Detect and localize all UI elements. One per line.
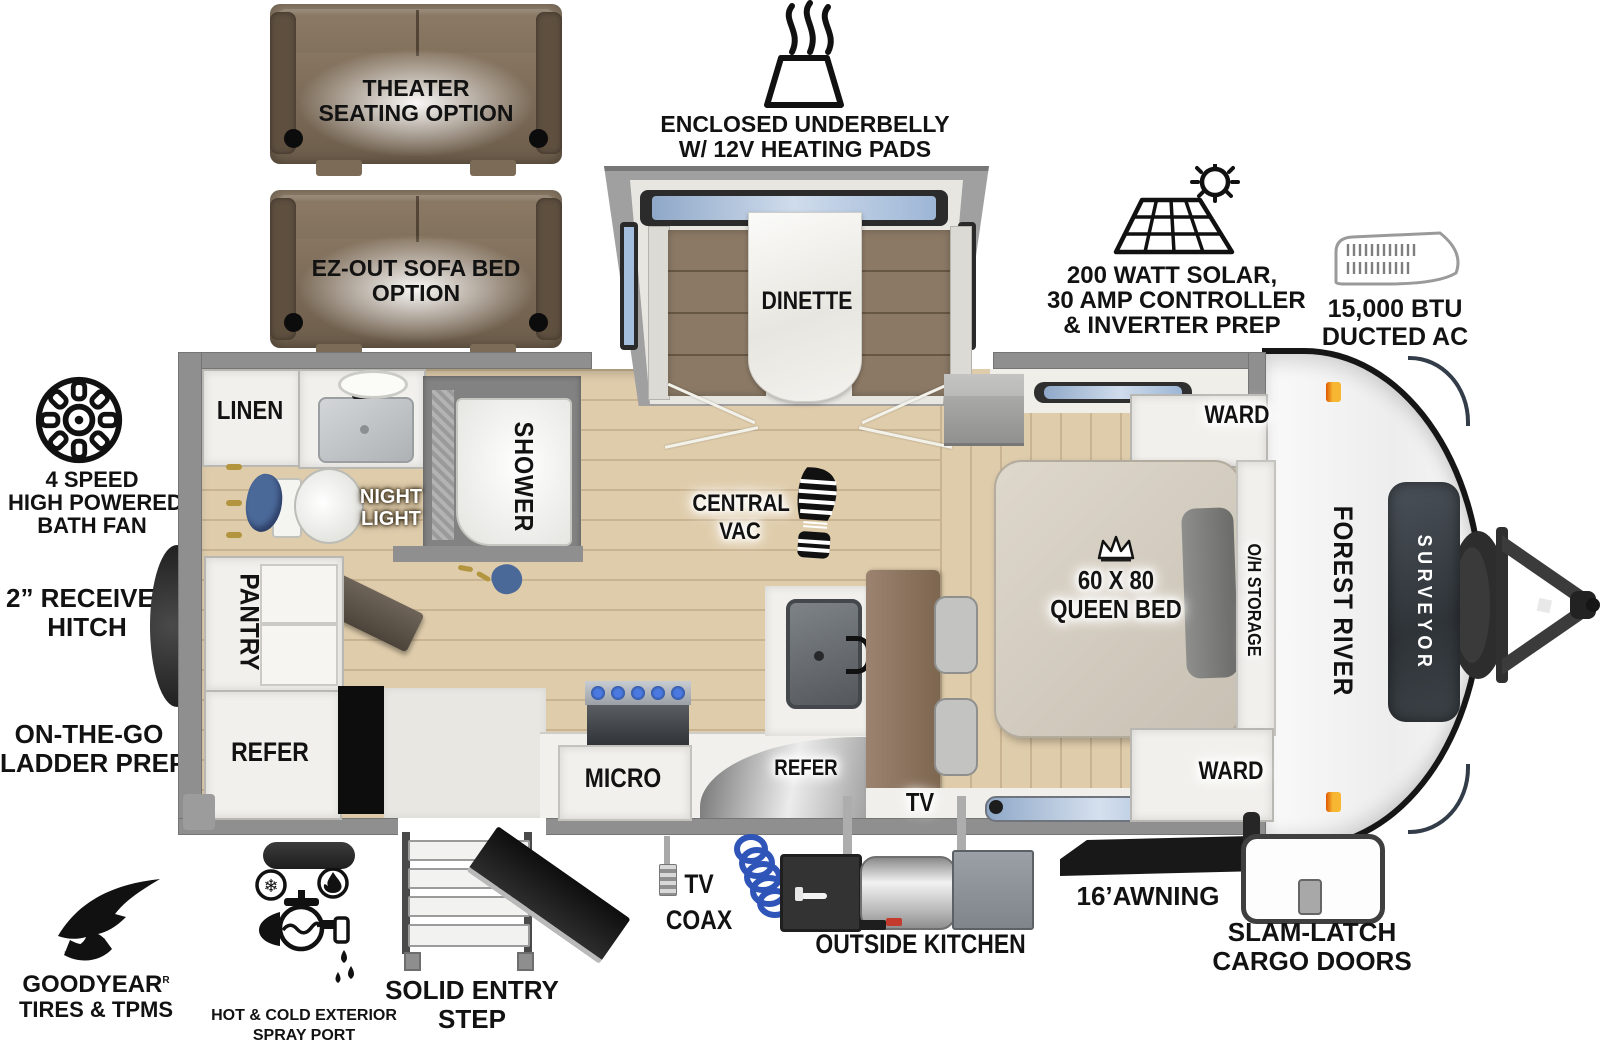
step-line1: SOLID ENTRY xyxy=(382,976,562,1005)
night-light-line2: LIGHT xyxy=(352,508,430,530)
tv-label: TV xyxy=(896,788,944,817)
rear-stabilizer xyxy=(183,794,215,830)
towel-bar xyxy=(226,464,242,470)
outside-kitchen-griddle xyxy=(860,856,956,930)
floorplan-canvas: THEATER SEATING OPTION EZ-OUT SOFA BED O… xyxy=(0,0,1600,1048)
solar-line1: 200 WATT SOLAR, xyxy=(1047,264,1297,289)
sofa-foot xyxy=(470,160,516,176)
oh-storage-label: O/H STORAGE xyxy=(1239,533,1269,668)
cargo-door xyxy=(1241,834,1385,924)
sofabed-option-line2: OPTION xyxy=(286,281,546,306)
shower-label: SHOWER xyxy=(509,414,539,540)
goodyear-word: GOODYEAR xyxy=(22,971,162,998)
shower-stall xyxy=(423,376,581,552)
griddle-knob xyxy=(886,918,902,926)
sink-drain xyxy=(360,425,369,434)
cap-pinstripe-bottom xyxy=(1408,764,1470,834)
theater-option-line1: THEATER xyxy=(286,76,546,101)
sofabed-option-label: EZ-OUT SOFA BED OPTION xyxy=(286,256,546,307)
pantry-label: PANTRY xyxy=(235,570,265,674)
rear-bumper xyxy=(263,842,355,869)
window-glass xyxy=(624,227,634,345)
cargo-latch xyxy=(1298,879,1322,915)
wall-top-rear xyxy=(178,352,592,369)
solar-line3: & INVERTER PREP xyxy=(1047,314,1297,339)
theater-option-line2: SEATING OPTION xyxy=(286,101,546,126)
dinette-side-window-left xyxy=(620,222,638,350)
outside-kitchen-cabinet xyxy=(952,850,1034,930)
refer-rear-side xyxy=(338,686,384,814)
burner-icon xyxy=(671,686,685,700)
bed-type: QUEEN BED xyxy=(1031,595,1201,624)
spray-line1: HOT & COLD EXTERIOR xyxy=(206,1006,402,1026)
pantry-cabinet xyxy=(204,556,344,692)
burner-icon xyxy=(631,686,645,700)
cargo-doors-callout: SLAM-LATCH CARGO DOORS xyxy=(1212,918,1412,975)
shower-glass xyxy=(432,390,454,540)
spray-port-icon: ❄ xyxy=(240,868,380,1002)
outside-faucet-icon xyxy=(795,887,803,901)
outside-faucet-icon xyxy=(801,893,827,899)
spray-port-callout: HOT & COLD EXTERIOR SPRAY PORT xyxy=(206,1006,402,1046)
towel-bar xyxy=(226,500,242,506)
night-light-line1: NIGHT xyxy=(352,486,430,508)
cabinet-door xyxy=(260,564,338,624)
solar-line2: 30 AMP CONTROLLER xyxy=(1047,289,1297,314)
ward-top-label: WARD xyxy=(1199,402,1276,430)
bath-fan-icon xyxy=(33,374,125,466)
entry-step-foot xyxy=(517,952,534,971)
fan-line3: BATH FAN xyxy=(8,514,176,537)
receiver-hitch-callout: 2” RECEIVER HITCH xyxy=(6,584,168,641)
cabinet-door xyxy=(260,624,338,686)
wall-rear xyxy=(178,352,202,835)
heating-pads-icon xyxy=(748,0,860,112)
burner-icon xyxy=(651,686,665,700)
ladder-line2: LADDER PREP xyxy=(0,749,178,778)
ceiling-light xyxy=(338,370,408,399)
cargo-line1: SLAM-LATCH xyxy=(1212,918,1412,947)
coax-line1: TV xyxy=(655,866,743,902)
step-line2: STEP xyxy=(382,1005,562,1034)
cupholder xyxy=(284,313,303,332)
clearance-light xyxy=(1326,382,1341,402)
clearance-light xyxy=(1326,792,1341,812)
dinette-label: DINETTE xyxy=(762,288,847,316)
cupholder xyxy=(529,313,548,332)
coax-line2: COAX xyxy=(655,902,743,938)
underbelly-line2: W/ 12V HEATING PADS xyxy=(655,137,955,162)
dinette-bench-right xyxy=(852,230,950,396)
bed-seat xyxy=(934,698,978,776)
tongue-hitch xyxy=(1452,505,1600,705)
ac-line1: 15,000 BTU xyxy=(1320,296,1470,324)
entry-step-foot xyxy=(404,952,421,971)
entry-step-tread xyxy=(408,924,530,947)
ac-callout: 15,000 BTU DUCTED AC xyxy=(1320,296,1470,351)
solar-panel-icon xyxy=(1112,164,1252,266)
range-body xyxy=(587,705,689,745)
queen-bed-label: 60 X 80 QUEEN BED xyxy=(1031,566,1201,624)
cooktop xyxy=(585,681,691,705)
ez-out-sofa-bed-option: EZ-OUT SOFA BED OPTION xyxy=(270,190,562,348)
surveyor-logo: SURVEYOR xyxy=(1409,500,1439,707)
bed-size: 60 X 80 xyxy=(1031,566,1201,595)
fan-line2: HIGH POWERED xyxy=(8,491,176,514)
cap-pinstripe-top xyxy=(1408,356,1470,426)
underbelly-callout: ENCLOSED UNDERBELLY W/ 12V HEATING PADS xyxy=(655,112,955,163)
underbelly-line1: ENCLOSED UNDERBELLY xyxy=(655,112,955,137)
tv-wall xyxy=(866,570,940,796)
tv-coax-callout: TV COAX xyxy=(655,866,743,939)
ladder-line1: ON-THE-GO xyxy=(0,720,178,749)
goodyear-line2: TIRES & TPMS xyxy=(12,998,180,1022)
towel-bar xyxy=(226,532,242,538)
entry-step-callout: SOLID ENTRY STEP xyxy=(382,976,562,1033)
night-light-label: NIGHT LIGHT xyxy=(352,486,430,530)
kitchen-post xyxy=(957,796,966,854)
sink-drain xyxy=(814,651,824,661)
sofa-foot xyxy=(316,160,362,176)
theater-seating-option: THEATER SEATING OPTION xyxy=(270,4,562,164)
outside-kitchen-sink xyxy=(780,854,862,932)
receiver-line2: HITCH xyxy=(6,613,168,642)
linen-label: LINEN xyxy=(211,396,289,425)
micro-label: MICRO xyxy=(575,764,672,794)
fan-line1: 4 SPEED xyxy=(8,468,176,491)
goodyear-callout: GOODYEARR TIRES & TPMS xyxy=(12,972,180,1023)
burner-icon xyxy=(591,686,605,700)
central-vac-line2: VAC xyxy=(692,518,787,546)
crown-icon xyxy=(1094,534,1138,564)
coax-cable xyxy=(664,836,670,866)
sofabed-option-line1: EZ-OUT SOFA BED xyxy=(286,256,546,281)
bath-wall xyxy=(393,546,583,562)
spray-line2: SPRAY PORT xyxy=(206,1026,402,1046)
ladder-prep-callout: ON-THE-GO LADDER PREP xyxy=(0,720,178,777)
entry-floor xyxy=(384,688,546,818)
receiver-line1: 2” RECEIVER xyxy=(6,584,168,613)
cupholder xyxy=(284,129,303,148)
bath-fan-callout: 4 SPEED HIGH POWERED BATH FAN xyxy=(8,468,176,537)
central-vac-line1: CENTRAL xyxy=(692,490,787,518)
refer-rear-label: REFER xyxy=(226,738,314,768)
burner-icon xyxy=(611,686,625,700)
cargo-line2: CARGO DOORS xyxy=(1212,947,1412,976)
theater-option-label: THEATER SEATING OPTION xyxy=(286,76,546,127)
solar-callout: 200 WATT SOLAR, 30 AMP CONTROLLER & INVE… xyxy=(1047,264,1297,339)
kitchen-post xyxy=(843,796,852,858)
awning-rail xyxy=(1060,836,1252,876)
ward-bottom-label: WARD xyxy=(1193,758,1270,786)
ac-line2: DUCTED AC xyxy=(1320,324,1470,352)
forest-river-logo: FOREST RIVER xyxy=(1328,480,1358,723)
goodyear-line1: GOODYEARR xyxy=(12,972,180,998)
overhead-cabinet xyxy=(944,374,1024,446)
dinette-armrest-left xyxy=(648,226,670,400)
snowflake-icon: ❄ xyxy=(263,876,278,896)
cupholder xyxy=(529,129,548,148)
window-end-cap xyxy=(989,800,1003,814)
bed-seat xyxy=(934,596,978,674)
ducted-ac-icon xyxy=(1328,228,1468,290)
goodyear-registered-mark: R xyxy=(162,975,169,986)
wall-top-front xyxy=(993,352,1250,369)
central-vac-label: CENTRAL VAC xyxy=(692,490,787,545)
refer-kitchen-label: REFER xyxy=(774,756,839,780)
goodyear-wingfoot-icon xyxy=(52,876,164,968)
outside-kitchen-callout: OUTSIDE KITCHEN xyxy=(815,930,989,960)
boot-print-icon xyxy=(789,464,844,563)
awning-callout: 16’AWNING xyxy=(1068,882,1228,911)
